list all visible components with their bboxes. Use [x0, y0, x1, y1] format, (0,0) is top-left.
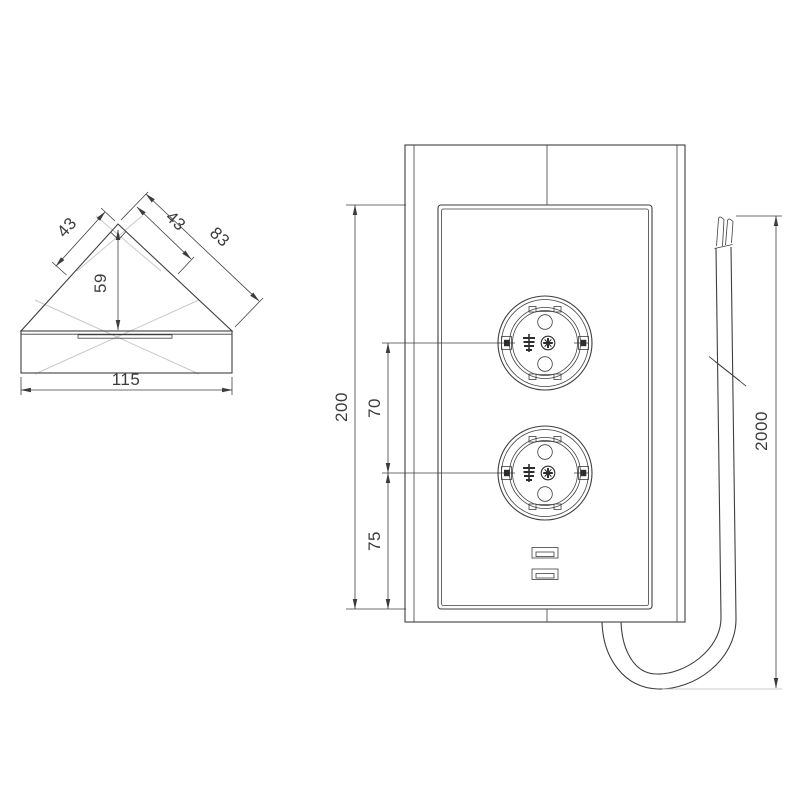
dim-label-70: 70 [365, 398, 384, 418]
dimension-2000: 2000 [662, 216, 782, 689]
cable-break-symbol [709, 356, 746, 386]
dim-label-200: 200 [332, 392, 351, 422]
dimension-59: 59 [91, 230, 118, 330]
technical-drawing: 43 43 83 59 115 [0, 0, 800, 800]
triangle-lid-outline [21, 224, 232, 331]
housing [405, 145, 685, 622]
base-body [21, 331, 232, 373]
centerlines [35, 216, 199, 374]
front-slot [78, 335, 172, 338]
usb-port-upper [532, 548, 558, 559]
wire-ends [717, 217, 734, 246]
dim-label-115: 115 [112, 370, 141, 389]
face-panel [438, 205, 652, 609]
schuko-socket-upper [498, 296, 592, 390]
dim-label-43-left: 43 [53, 214, 80, 242]
front-view: 200 70 75 [332, 145, 782, 689]
dim-label-59: 59 [91, 273, 110, 293]
schuko-socket-lower [498, 426, 592, 520]
usb-port-lower [532, 569, 558, 580]
dim-label-2000: 2000 [752, 411, 771, 451]
dimension-115: 115 [21, 370, 232, 395]
dim-label-75: 75 [365, 531, 384, 551]
dim-label-43-right: 43 [162, 207, 190, 234]
technical-drawing-page: 43 43 83 59 115 [0, 0, 800, 800]
dimension-75: 75 [365, 473, 388, 609]
dimension-70: 70 [365, 343, 388, 473]
dim-label-83: 83 [206, 223, 234, 250]
power-cable [602, 217, 746, 689]
dimension-83: 83 [146, 194, 263, 327]
top-view: 43 43 83 59 115 [21, 192, 263, 395]
